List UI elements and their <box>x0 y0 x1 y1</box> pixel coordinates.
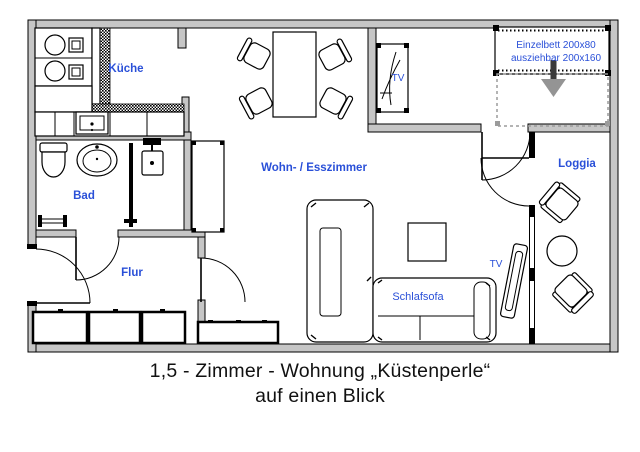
sideboard <box>198 320 278 343</box>
shower <box>124 138 163 227</box>
loggia-label: Loggia <box>558 158 596 170</box>
tv-living <box>500 243 528 318</box>
kitchen-sink <box>76 112 108 134</box>
wardrobe <box>192 141 224 232</box>
bath-room: Bad <box>38 138 163 227</box>
towel-rail <box>38 215 67 227</box>
living-label: Wohn- / Esszimmer <box>261 162 367 174</box>
floor-plan-page: Küche Bad <box>0 0 640 452</box>
tv-living-label: TV <box>490 259 503 270</box>
alcove-door <box>482 132 530 180</box>
hall-closets <box>33 309 185 343</box>
coffee-table <box>408 223 446 261</box>
kitchen-room: Küche <box>35 28 184 136</box>
dining-chair <box>239 85 275 120</box>
living-room: Schlafsofa TV Wohn- / Esszimmer <box>198 32 528 343</box>
bathroom-sink <box>77 144 117 176</box>
loggia-room: Loggia <box>537 158 596 316</box>
tv-alcove: TV <box>376 43 409 113</box>
dining-chair <box>316 38 352 73</box>
sofa-label: Schlafsofa <box>392 291 444 303</box>
caption-line-1: 1,5 - Zimmer - Wohnung „Küstenperle“ <box>0 360 640 383</box>
loggia-chair <box>537 180 582 225</box>
loggia-table <box>547 236 577 266</box>
dining-chair <box>237 37 273 72</box>
hall-room: Flur <box>33 267 185 343</box>
tv-alcove-label: TV <box>392 73 405 84</box>
loggia-door <box>481 158 529 206</box>
sleeping-alcove: TV Einzelbett 200x80 ausziehbar 200x160 <box>376 25 611 126</box>
single-bed: Einzelbett 200x80 ausziehbar 200x160 <box>493 25 611 126</box>
loggia-chair <box>550 270 595 315</box>
caption-line-2: auf einen Blick <box>0 385 640 408</box>
kitchen-label: Küche <box>108 63 143 75</box>
dining-table <box>273 32 316 117</box>
bath-door <box>76 237 119 280</box>
washer-dryer <box>35 28 92 86</box>
hall-label: Flur <box>121 267 143 279</box>
bed-label-line1: Einzelbett 200x80 <box>516 40 596 51</box>
hall-living-door <box>201 258 245 302</box>
bath-label: Bad <box>73 190 95 202</box>
toilet <box>40 143 67 177</box>
entrance-door <box>36 249 90 303</box>
dining-chair <box>317 85 353 120</box>
entrance-opening <box>27 249 37 301</box>
sofa: Schlafsofa <box>307 200 496 342</box>
bed-label-line2: ausziehbar 200x160 <box>511 53 602 64</box>
loggia-glass-wall <box>529 132 535 344</box>
